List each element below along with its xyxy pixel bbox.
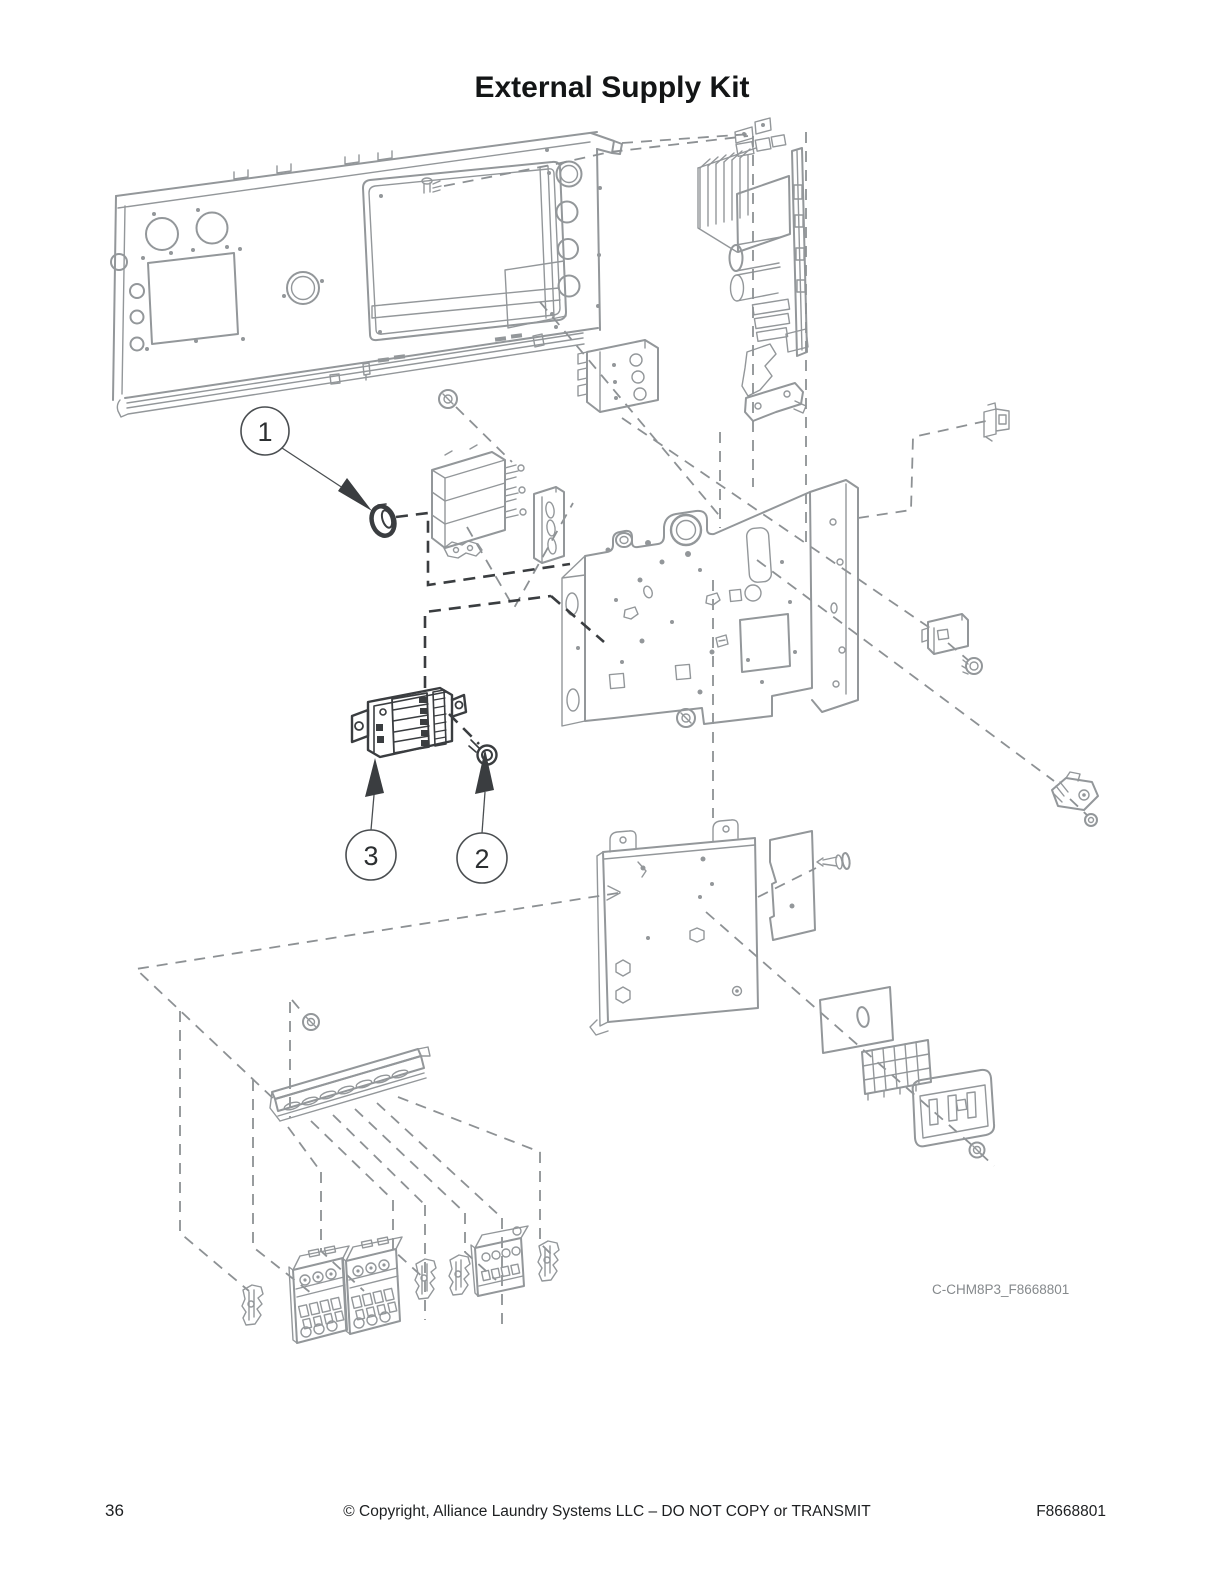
screw-upper: [439, 390, 457, 408]
footer-page-number: 36: [105, 1501, 124, 1520]
slotted-strip: [534, 487, 564, 563]
contactor-1: [289, 1246, 349, 1343]
clip-fastener: [984, 403, 1009, 441]
lower-right-alignment-line: [706, 912, 994, 1166]
small-bracket: [444, 541, 482, 558]
end-clamp-1: [242, 1285, 263, 1325]
callout-1-marker: 1: [241, 407, 372, 511]
din-rail-alignment-lines: [136, 886, 620, 1325]
callout-2-marker: 2: [457, 749, 507, 883]
end-clamp-3: [449, 1255, 470, 1295]
electrical-box: [590, 820, 758, 1035]
grommet-small: [616, 533, 632, 547]
callout-3-label: 3: [363, 841, 378, 871]
control-panel: [111, 132, 622, 417]
round-nut: [962, 658, 982, 674]
callout-2-label: 2: [474, 844, 489, 874]
rivet-alignment-line: [758, 868, 816, 897]
alignment-lines-upper: [444, 132, 1088, 818]
screw-near-rail: [303, 1014, 319, 1030]
item-1-grommet: [368, 503, 398, 538]
fuse-holder: [913, 1070, 994, 1146]
heatsink: [698, 148, 790, 252]
mounting-plate: [562, 480, 858, 727]
parts-diagram-page: External Supply Kit C-CHM8P3_F8668801 36…: [0, 0, 1224, 1584]
din-rail: [270, 1047, 430, 1121]
terminal-strip: [862, 1040, 931, 1100]
item-3-module: [352, 688, 466, 757]
contactor-3-compact: [471, 1226, 528, 1296]
terminal-block-3pole: [578, 340, 658, 412]
push-rivet: [817, 853, 851, 870]
figure-code: C-CHM8P3_F8668801: [932, 1282, 1069, 1297]
footer-copyright: © Copyright, Alliance Laundry Systems LL…: [343, 1503, 871, 1520]
screw-lower-right: [970, 1143, 985, 1158]
box-bracket: [922, 614, 968, 654]
callout-3-marker: 3: [346, 758, 396, 880]
grommet-large: [671, 515, 701, 545]
terminal-block-3tier: [432, 445, 526, 548]
end-clamp-4: [538, 1241, 559, 1281]
small-washer: [1085, 814, 1097, 826]
item-1-routing-line: [396, 513, 570, 585]
callout-1-label: 1: [257, 417, 272, 447]
item-2-routing-line: [449, 714, 479, 744]
footer-doc-number: F8668801: [1036, 1503, 1106, 1520]
page-title: External Supply Kit: [474, 71, 749, 104]
contactor-2: [342, 1237, 402, 1334]
box-side-plate: [770, 831, 815, 940]
